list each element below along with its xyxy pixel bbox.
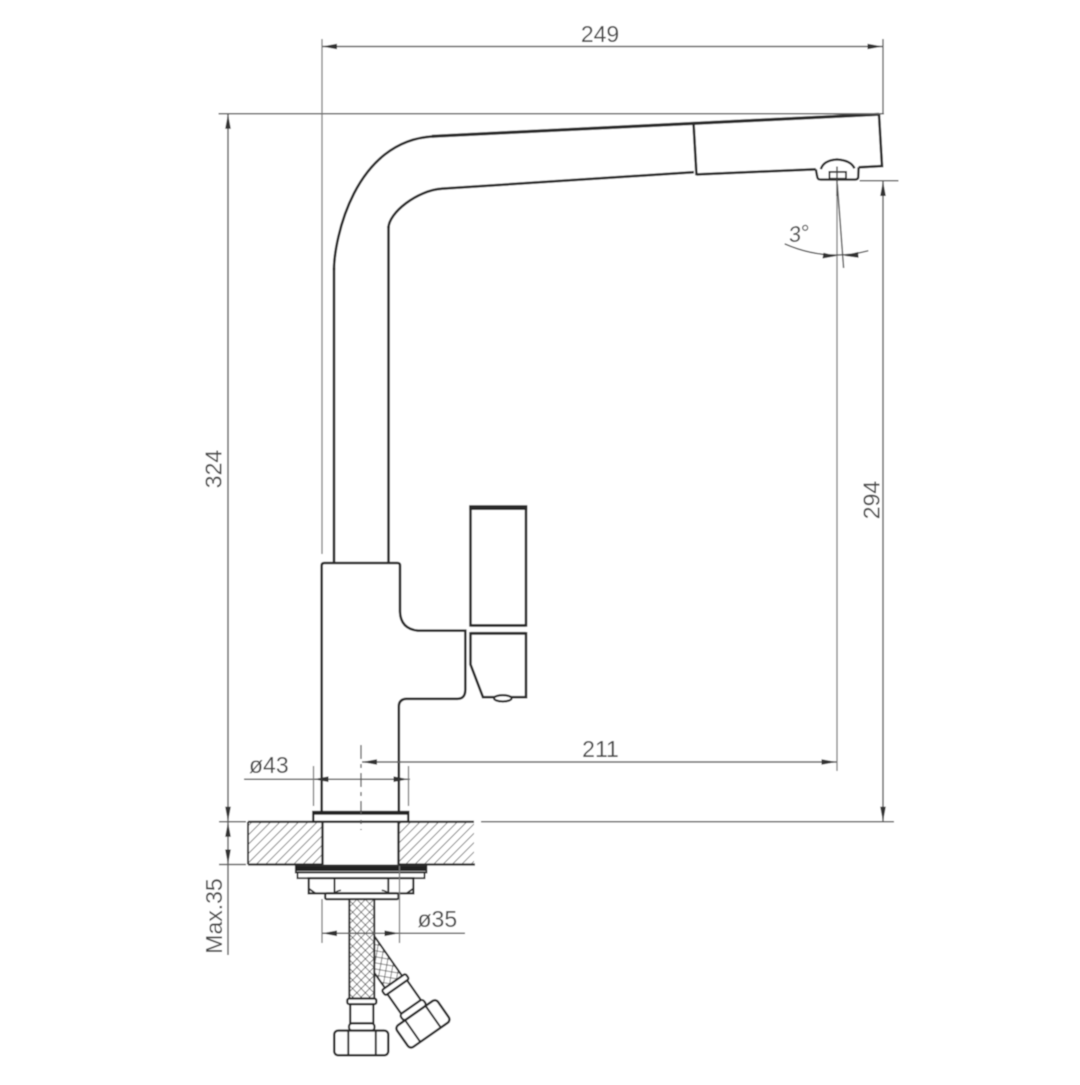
svg-text:ø35: ø35 [418,906,458,932]
svg-text:Max.35: Max.35 [201,878,227,953]
svg-text:211: 211 [582,736,619,762]
svg-text:324: 324 [201,450,227,489]
svg-text:249: 249 [581,21,619,47]
svg-text:294: 294 [859,481,885,520]
svg-text:ø43: ø43 [249,752,289,778]
svg-text:3°: 3° [787,220,812,248]
